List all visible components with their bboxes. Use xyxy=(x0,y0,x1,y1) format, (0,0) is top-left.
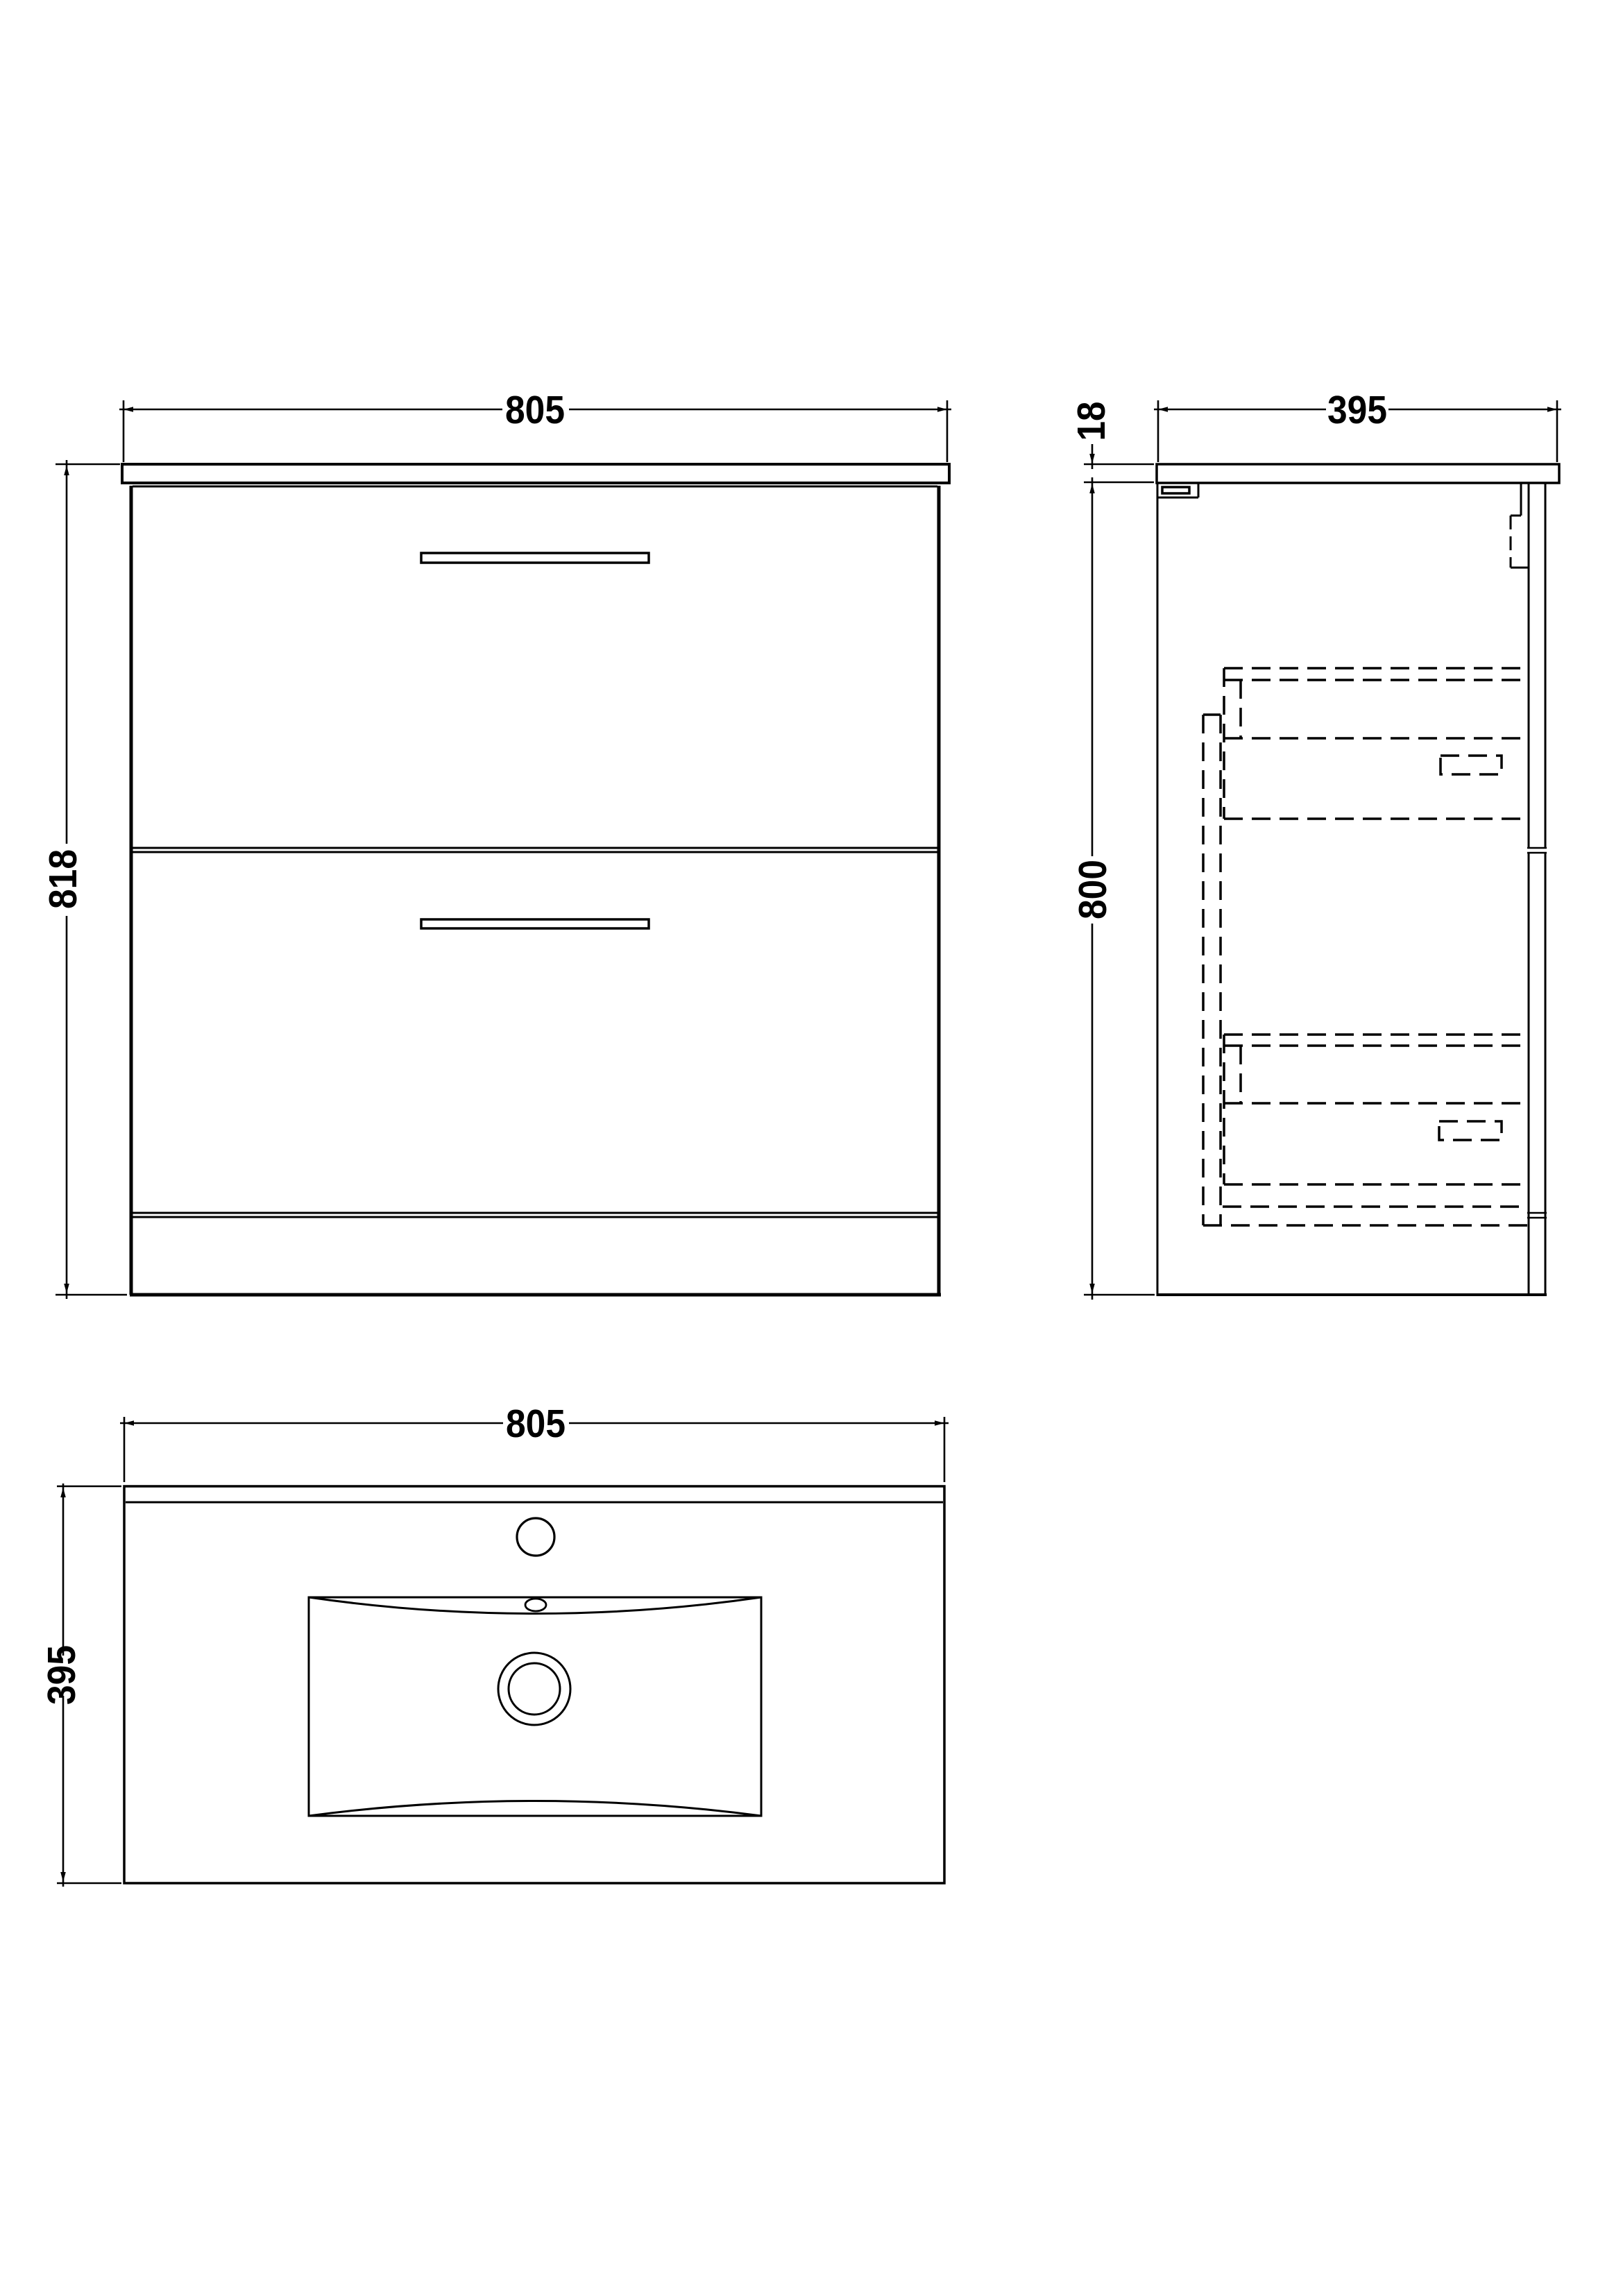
svg-text:805: 805 xyxy=(505,388,565,432)
svg-text:805: 805 xyxy=(506,1402,566,1446)
svg-text:395: 395 xyxy=(40,1645,84,1705)
svg-text:18: 18 xyxy=(1069,402,1114,441)
svg-text:800: 800 xyxy=(1071,860,1115,919)
svg-text:818: 818 xyxy=(41,849,85,909)
svg-text:395: 395 xyxy=(1327,388,1387,432)
